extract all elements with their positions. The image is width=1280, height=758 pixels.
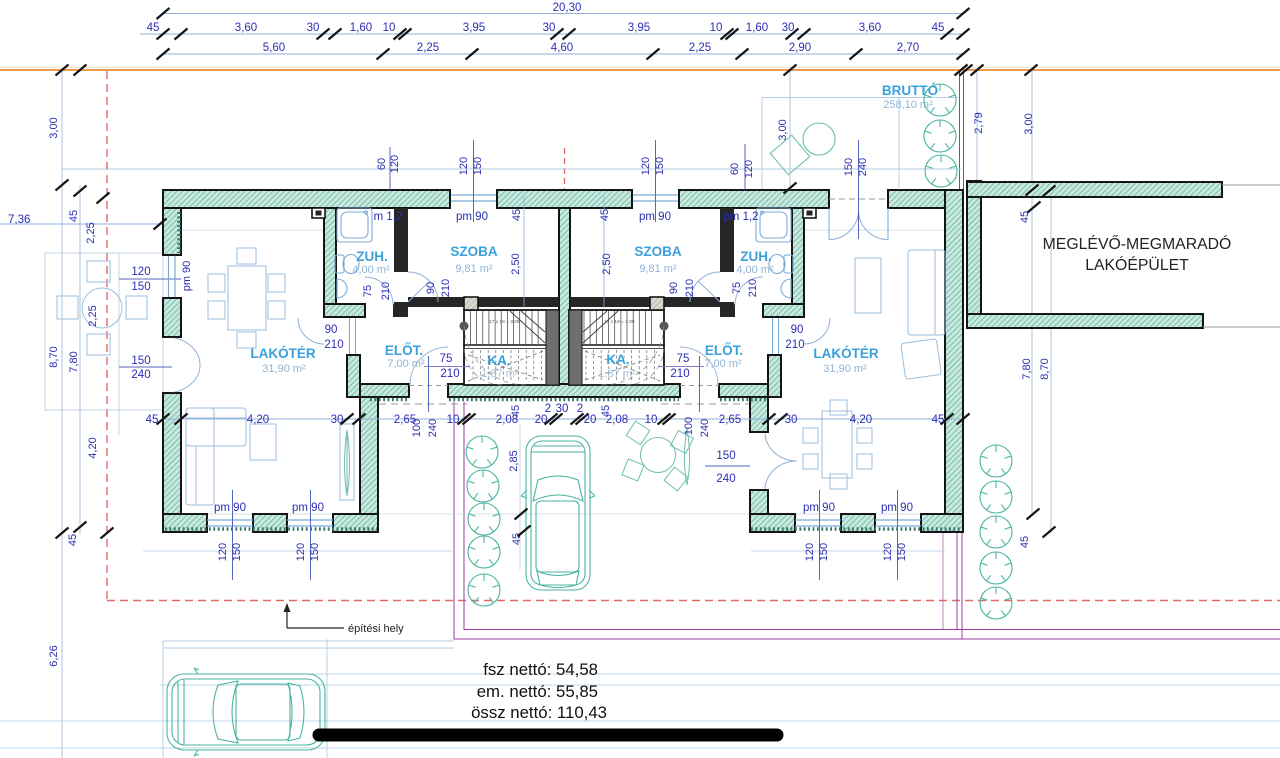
svg-text:210: 210 <box>785 339 804 351</box>
svg-text:pm 90: pm 90 <box>803 502 835 514</box>
svg-text:2,70: 2,70 <box>897 42 919 54</box>
svg-text:1,60: 1,60 <box>746 22 768 34</box>
svg-text:9,81 m²: 9,81 m² <box>639 263 677 275</box>
svg-text:2,50: 2,50 <box>510 253 522 274</box>
svg-text:pm 90: pm 90 <box>214 502 246 514</box>
svg-text:45: 45 <box>67 534 79 546</box>
svg-text:3,60: 3,60 <box>859 22 881 34</box>
svg-text:3,95: 3,95 <box>628 22 650 34</box>
svg-text:10: 10 <box>645 414 658 426</box>
svg-text:30: 30 <box>331 414 344 426</box>
svg-text:4,00 m²: 4,00 m² <box>736 264 774 276</box>
svg-text:240: 240 <box>857 158 869 176</box>
svg-text:ELŐT.: ELŐT. <box>385 343 423 358</box>
svg-text:3,00: 3,00 <box>1023 113 1035 134</box>
svg-text:150: 150 <box>131 355 150 367</box>
svg-text:120: 120 <box>804 543 816 561</box>
svg-text:90: 90 <box>425 282 437 294</box>
svg-text:LAKÓTÉR: LAKÓTÉR <box>813 346 878 361</box>
svg-text:17 x 18 = 3,08: 17 x 18 = 3,08 <box>604 319 635 325</box>
svg-text:4,60: 4,60 <box>551 42 573 54</box>
svg-text:SZOBA: SZOBA <box>634 244 682 259</box>
svg-text:pm 90: pm 90 <box>292 502 324 514</box>
svg-text:10: 10 <box>383 22 396 34</box>
svg-text:7,36: 7,36 <box>8 214 30 226</box>
svg-text:210: 210 <box>440 368 459 380</box>
svg-text:pm 1,2: pm 1,2 <box>723 211 758 223</box>
svg-text:75: 75 <box>440 353 453 365</box>
svg-text:90: 90 <box>325 324 338 336</box>
svg-text:100: 100 <box>683 417 695 435</box>
svg-text:3,60: 3,60 <box>235 22 257 34</box>
svg-text:2,25: 2,25 <box>87 305 99 326</box>
svg-text:240: 240 <box>699 419 711 437</box>
svg-text:2,25: 2,25 <box>417 42 439 54</box>
svg-text:9,81 m²: 9,81 m² <box>455 263 493 275</box>
svg-text:2,79: 2,79 <box>973 112 985 133</box>
svg-text:45: 45 <box>600 405 612 417</box>
svg-text:210: 210 <box>440 279 452 297</box>
svg-text:240: 240 <box>427 419 439 437</box>
svg-text:120: 120 <box>743 160 755 178</box>
svg-text:30: 30 <box>556 403 569 415</box>
svg-text:120: 120 <box>131 266 150 278</box>
svg-text:1,87 m²: 1,87 m² <box>481 368 519 380</box>
svg-text:31,90 m²: 31,90 m² <box>823 363 867 375</box>
svg-text:120: 120 <box>389 155 401 173</box>
svg-text:3,00: 3,00 <box>777 119 789 140</box>
svg-text:45: 45 <box>599 209 611 221</box>
svg-text:fsz nettó: 54,58: fsz nettó: 54,58 <box>483 660 598 679</box>
svg-text:90: 90 <box>791 324 804 336</box>
svg-text:2,65: 2,65 <box>719 414 741 426</box>
svg-text:4,20: 4,20 <box>87 437 99 458</box>
svg-text:pm 90: pm 90 <box>181 261 193 292</box>
svg-text:ELŐT.: ELŐT. <box>705 343 743 358</box>
svg-text:4,20: 4,20 <box>247 414 269 426</box>
svg-text:120: 120 <box>217 543 229 561</box>
svg-text:31,90 m²: 31,90 m² <box>262 363 306 375</box>
svg-text:LAKÓÉPÜLET: LAKÓÉPÜLET <box>1085 255 1189 274</box>
svg-text:20,30: 20,30 <box>553 2 582 14</box>
svg-text:17 x 18 = 3,08: 17 x 18 = 3,08 <box>489 319 520 325</box>
svg-text:10: 10 <box>447 414 460 426</box>
svg-text:ZUH.: ZUH. <box>740 249 772 264</box>
svg-text:150: 150 <box>896 543 908 561</box>
svg-text:60: 60 <box>376 158 388 170</box>
svg-text:4,00 m²: 4,00 m² <box>352 264 390 276</box>
svg-text:240: 240 <box>716 473 735 485</box>
svg-text:90: 90 <box>668 282 680 294</box>
svg-text:45: 45 <box>932 414 945 426</box>
svg-text:össz nettó: 110,43: össz nettó: 110,43 <box>471 703 607 722</box>
svg-text:LAKÓTÉR: LAKÓTÉR <box>250 346 315 361</box>
svg-text:120: 120 <box>458 157 470 175</box>
svg-text:2,50: 2,50 <box>601 253 613 274</box>
svg-text:7,00 m²: 7,00 m² <box>387 358 425 370</box>
svg-text:7,80: 7,80 <box>68 351 80 372</box>
svg-text:2: 2 <box>545 403 551 415</box>
svg-text:75: 75 <box>362 285 374 297</box>
svg-text:10: 10 <box>710 22 723 34</box>
svg-text:45: 45 <box>1019 536 1031 548</box>
svg-text:150: 150 <box>472 157 484 175</box>
svg-text:75: 75 <box>677 353 690 365</box>
svg-text:7,80: 7,80 <box>1021 358 1033 379</box>
svg-text:20: 20 <box>584 414 597 426</box>
svg-text:120: 120 <box>640 157 652 175</box>
svg-text:pm 90: pm 90 <box>881 502 913 514</box>
svg-text:2,25: 2,25 <box>85 222 97 243</box>
svg-text:150: 150 <box>654 157 666 175</box>
svg-text:8,70: 8,70 <box>1039 358 1051 379</box>
svg-text:258,10 m²: 258,10 m² <box>883 99 933 111</box>
svg-text:8,70: 8,70 <box>48 346 60 367</box>
svg-text:3,95: 3,95 <box>463 22 485 34</box>
svg-text:45: 45 <box>146 414 159 426</box>
svg-text:6,26: 6,26 <box>48 645 60 666</box>
svg-text:45: 45 <box>511 209 523 221</box>
svg-text:pm 90: pm 90 <box>456 211 488 223</box>
svg-text:KA.: KA. <box>606 352 629 367</box>
svg-text:építési hely: építési hely <box>348 623 404 635</box>
svg-text:150: 150 <box>309 543 321 561</box>
svg-text:60: 60 <box>729 163 741 175</box>
svg-text:30: 30 <box>543 22 556 34</box>
svg-text:KA.: KA. <box>487 353 510 368</box>
svg-text:120: 120 <box>295 543 307 561</box>
svg-text:SZOBA: SZOBA <box>450 244 498 259</box>
svg-text:m 1,2: m 1,2 <box>374 211 403 223</box>
svg-text:75: 75 <box>731 282 743 294</box>
svg-text:1,60: 1,60 <box>350 22 372 34</box>
svg-text:5,60: 5,60 <box>263 42 285 54</box>
svg-text:150: 150 <box>818 543 830 561</box>
svg-text:em. nettó: 55,85: em. nettó: 55,85 <box>477 682 598 701</box>
svg-text:210: 210 <box>684 279 696 297</box>
svg-text:7,00 m²: 7,00 m² <box>704 358 742 370</box>
svg-text:210: 210 <box>324 339 343 351</box>
svg-text:150: 150 <box>843 158 855 176</box>
svg-text:150: 150 <box>231 543 243 561</box>
svg-text:20: 20 <box>535 414 548 426</box>
svg-text:45: 45 <box>932 22 945 34</box>
svg-text:210: 210 <box>670 368 689 380</box>
svg-text:30: 30 <box>307 22 320 34</box>
svg-text:45: 45 <box>510 405 522 417</box>
svg-text:210: 210 <box>380 282 392 300</box>
svg-text:2,25: 2,25 <box>689 42 711 54</box>
svg-text:120: 120 <box>882 543 894 561</box>
svg-text:4,20: 4,20 <box>850 414 872 426</box>
svg-text:100: 100 <box>411 419 423 437</box>
svg-text:150: 150 <box>716 450 735 462</box>
svg-text:45: 45 <box>1019 211 1031 223</box>
svg-text:45: 45 <box>147 22 160 34</box>
svg-text:3,00: 3,00 <box>48 117 60 138</box>
svg-text:2,90: 2,90 <box>789 42 811 54</box>
svg-text:BRUTTÓ: BRUTTÓ <box>882 83 938 98</box>
svg-text:pm 90: pm 90 <box>639 211 671 223</box>
svg-text:ZUH.: ZUH. <box>356 249 388 264</box>
svg-text:2: 2 <box>577 403 583 415</box>
svg-text:45: 45 <box>68 210 80 222</box>
svg-text:210: 210 <box>747 279 759 297</box>
svg-text:240: 240 <box>131 369 150 381</box>
svg-text:MEGLÉVŐ-MEGMARADÓ: MEGLÉVŐ-MEGMARADÓ <box>1043 234 1232 253</box>
svg-text:2,85: 2,85 <box>508 450 520 471</box>
svg-text:30: 30 <box>785 414 798 426</box>
svg-text:30: 30 <box>782 22 795 34</box>
svg-text:150: 150 <box>131 281 150 293</box>
